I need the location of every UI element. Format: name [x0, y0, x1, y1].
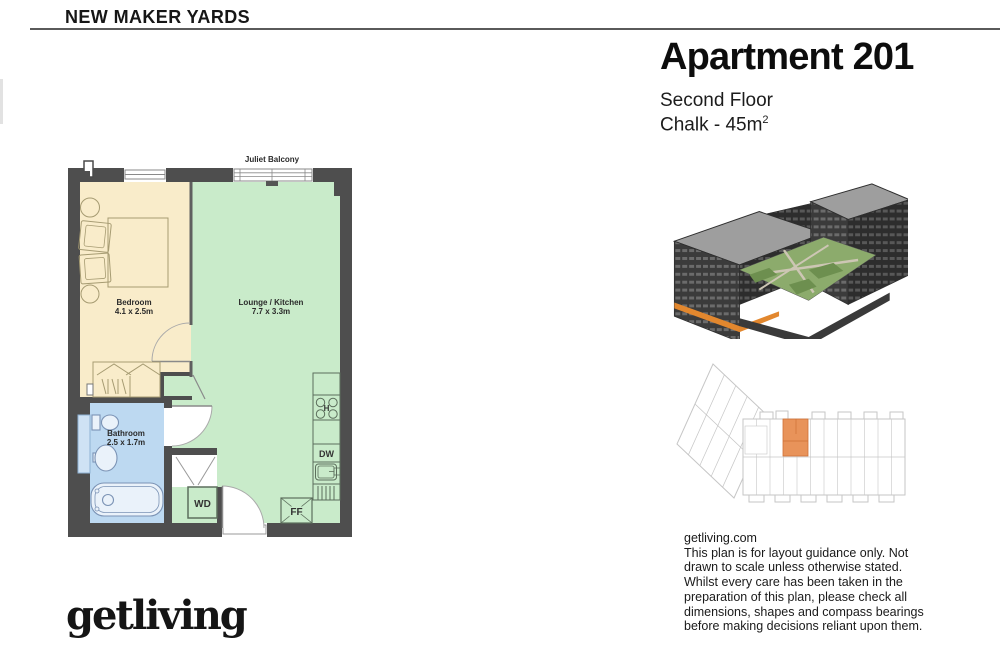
area-superscript: 2	[762, 114, 768, 126]
locator-horizontal-wing	[743, 411, 905, 502]
front-low-block	[740, 293, 890, 339]
apartment-title: Apartment 201	[660, 36, 914, 79]
getliving-logo: getliving	[66, 592, 246, 639]
disclaimer-line: drawn to scale unless otherwise stated.	[684, 560, 990, 575]
dishwasher-label: DW	[319, 449, 334, 459]
washer-dryer-label: WD	[194, 499, 211, 510]
bathroom-label: Bathroom 2.5 x 1.7m	[97, 429, 155, 447]
disclaimer-line: Whilst every care has been taken in the	[684, 575, 990, 590]
bedroom-dimensions: 4.1 x 2.5m	[94, 307, 174, 316]
lounge-kitchen-dimensions: 7.7 x 3.3m	[231, 307, 311, 316]
fridge-freezer-label: FF	[290, 507, 302, 518]
bedroom-window	[124, 168, 166, 182]
wall-protrusion	[83, 161, 93, 179]
disclaimer-line: preparation of this plan, please check a…	[684, 590, 990, 605]
disclaimer: getliving.com This plan is for layout gu…	[684, 531, 990, 634]
disclaimer-line: dimensions, shapes and compass bearings	[684, 605, 990, 620]
bedroom-label: Bedroom 4.1 x 2.5m	[94, 298, 174, 316]
bathroom-dimensions: 2.5 x 1.7m	[97, 438, 155, 447]
disclaimer-line: before making decisions reliant upon the…	[684, 619, 990, 634]
bathroom-recess	[78, 415, 90, 473]
header-divider-line	[30, 28, 1000, 30]
page-edge-artifact	[0, 79, 3, 124]
bathroom-name: Bathroom	[97, 429, 155, 438]
floorplan-document-page: NEW MAKER YARDS Apartment 201 Second Flo…	[0, 0, 1000, 660]
disclaimer-website: getliving.com	[684, 531, 990, 546]
floor-locator-image	[672, 356, 917, 528]
apartment-floor-label: Second Floor	[660, 90, 773, 112]
bathtub-glyph	[91, 483, 163, 516]
juliet-balcony-label: Juliet Balcony	[222, 155, 322, 164]
floor-plan-drawing: H DW WD FF	[60, 150, 365, 545]
apartment-type-text: Chalk - 45m	[660, 114, 762, 135]
hob-label: H	[324, 404, 330, 413]
lounge-kitchen-name: Lounge / Kitchen	[231, 298, 311, 307]
bedroom-name: Bedroom	[94, 298, 174, 307]
toilet-glyph	[92, 415, 119, 430]
kitchen-counter	[313, 373, 340, 500]
lounge-kitchen-label: Lounge / Kitchen 7.7 x 3.3m	[231, 298, 311, 316]
site-name-heading: NEW MAKER YARDS	[65, 7, 250, 28]
locator-highlighted-unit	[783, 419, 808, 456]
apartment-type-label: Chalk - 45m2	[660, 114, 769, 136]
building-render-image	[660, 176, 908, 339]
disclaimer-line: This plan is for layout guidance only. N…	[684, 546, 990, 561]
